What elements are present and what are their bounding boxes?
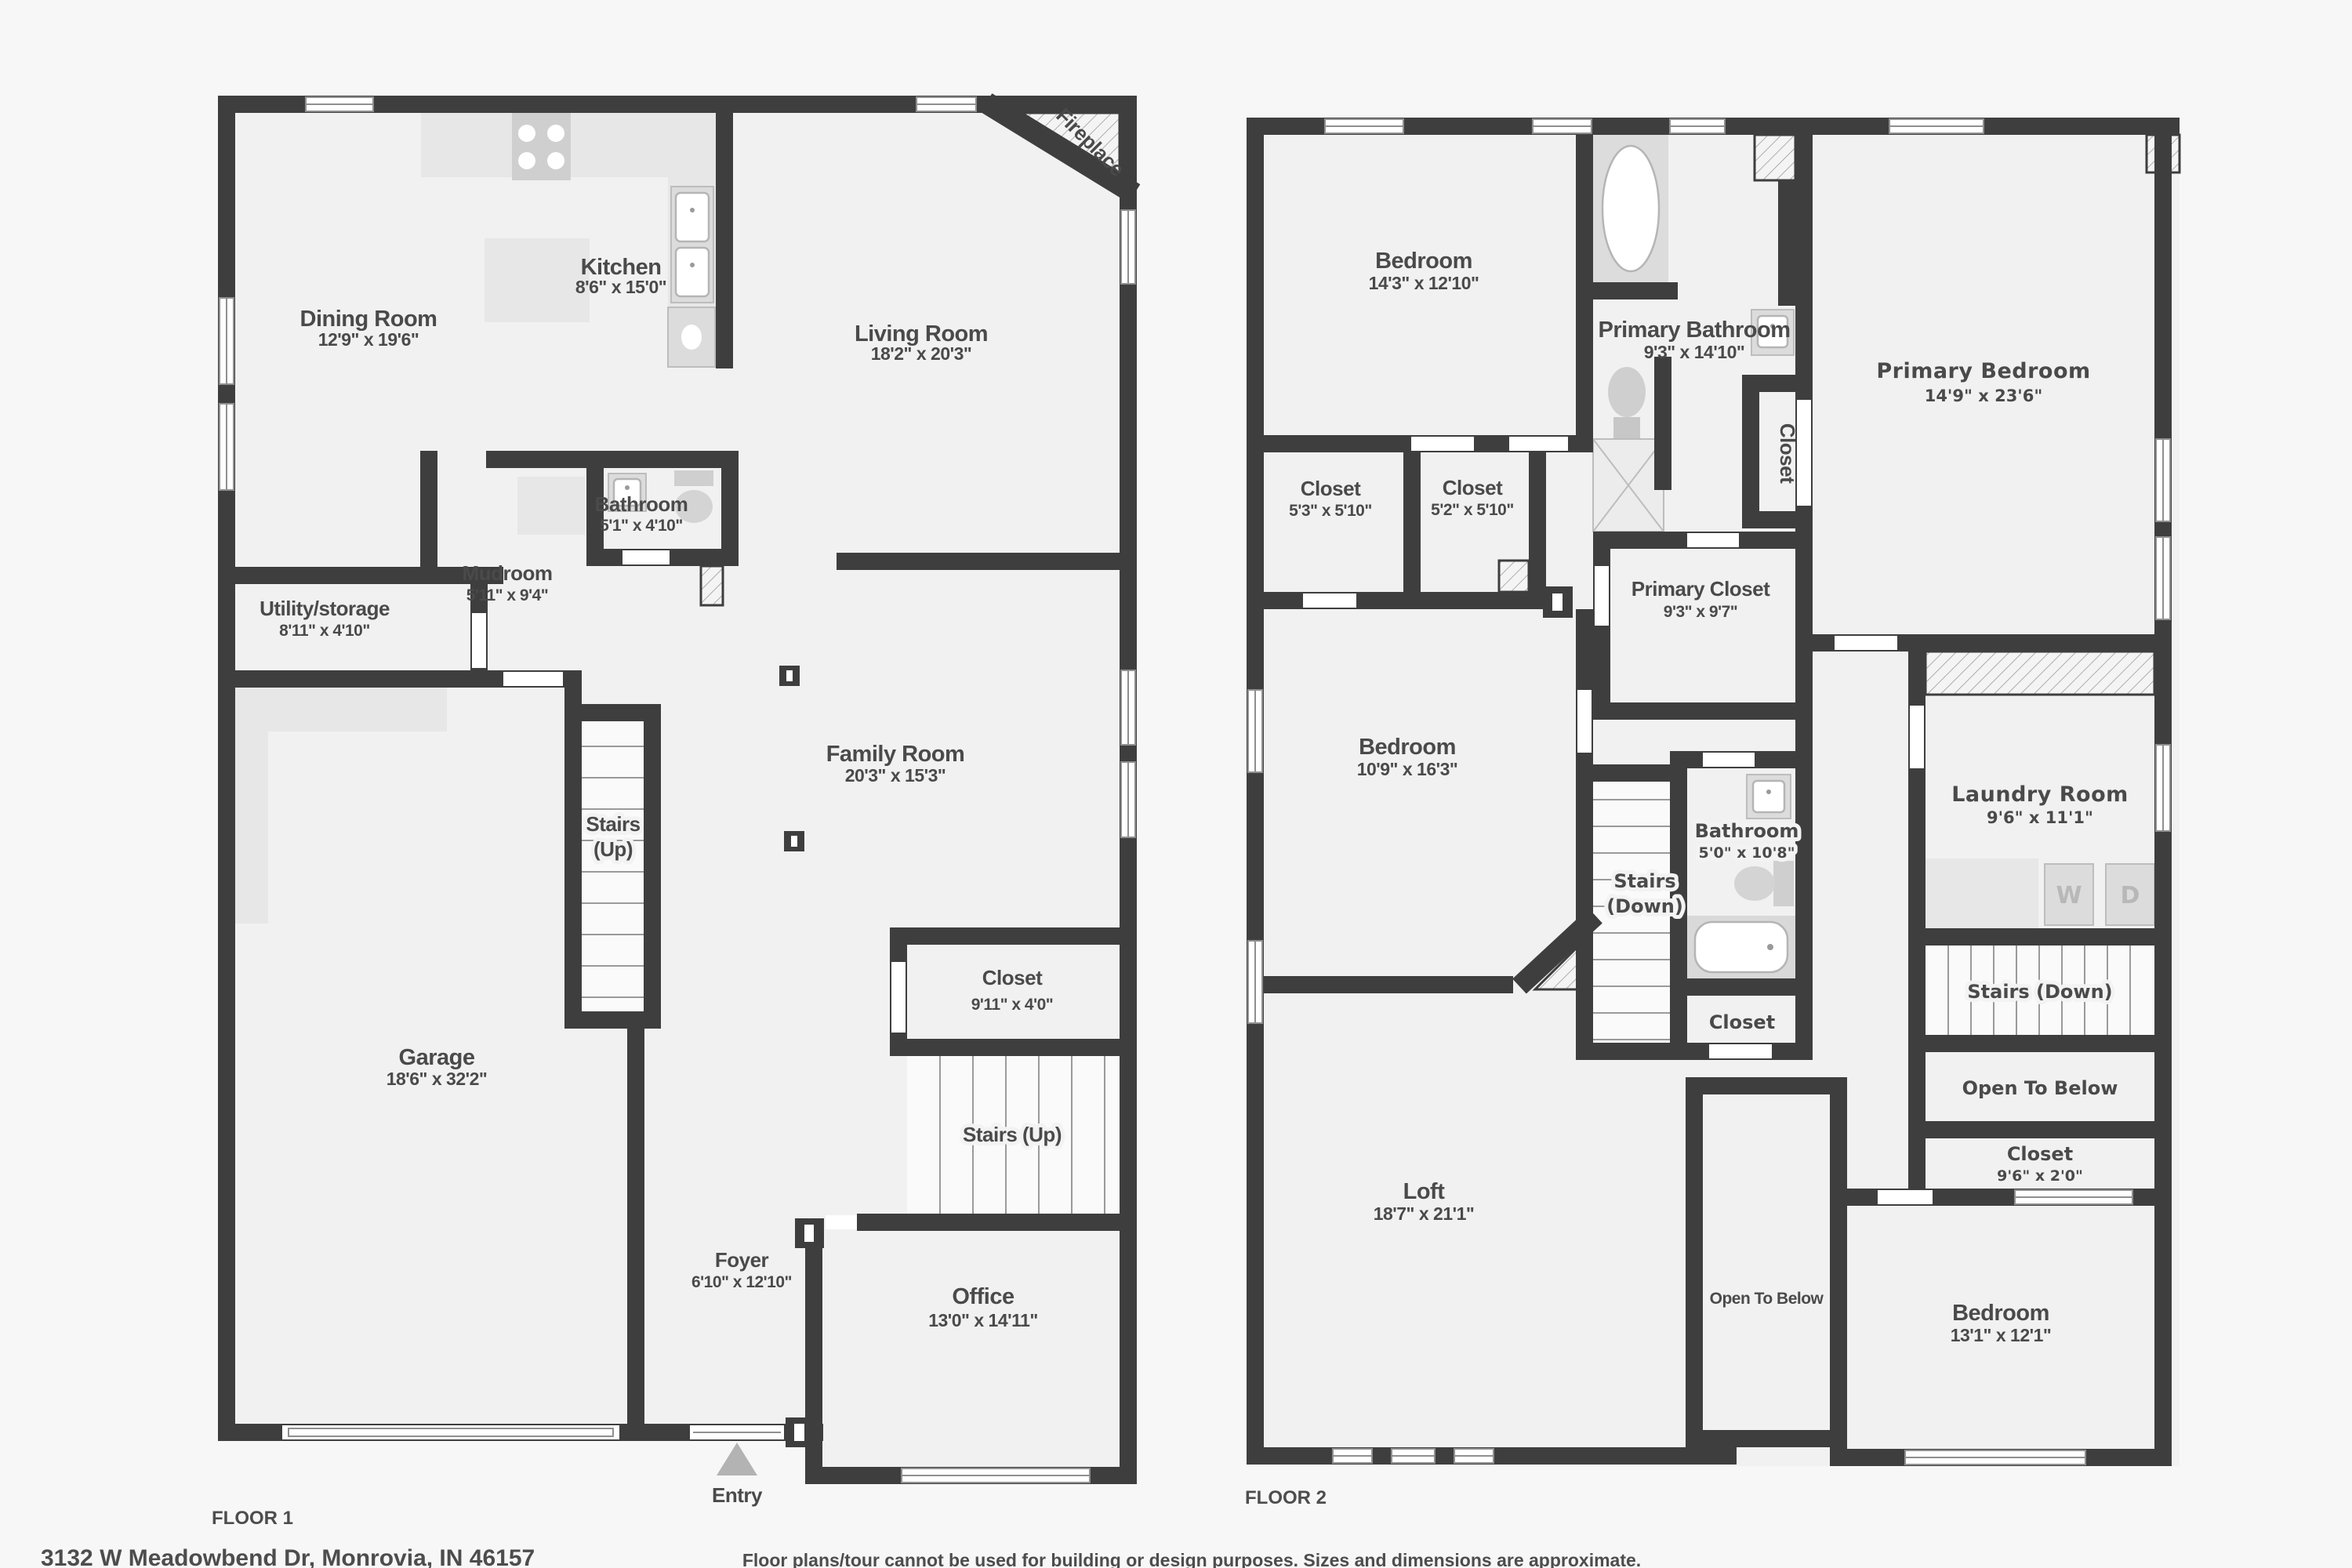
- room-dims-primary-closet: 9'3" x 9'7": [1664, 603, 1737, 621]
- window: [2156, 745, 2170, 831]
- room-label-closet-f1: Closet: [982, 966, 1043, 989]
- closet-hatch: [1499, 561, 1529, 592]
- bathroom2-sink-icon: [1747, 775, 1791, 818]
- room-dims-utility: 8'11" x 4'10": [279, 622, 370, 640]
- window: [1670, 119, 1725, 133]
- room-dims-family: 20'3" x 15'3": [845, 765, 946, 786]
- room-dims-loft: 18'7" x 21'1": [1374, 1203, 1475, 1224]
- kitchen-island: [485, 238, 590, 322]
- room-label-bedroom1: Bedroom: [1375, 249, 1472, 274]
- floor1-caption: FLOOR 1: [212, 1508, 293, 1529]
- door-icon: [786, 1417, 814, 1447]
- room-label-stairs-up-right: Stairs (Up): [963, 1123, 1062, 1146]
- room-label-loft: Loft: [1403, 1179, 1446, 1204]
- room-dims-bedroom3: 13'1" x 12'1": [1951, 1325, 2052, 1345]
- room-dims-foyer: 6'10" x 12'10": [691, 1273, 792, 1291]
- address-text: 3132 W Meadowbend Dr, Monrovia, IN 46157: [41, 1545, 535, 1568]
- post-marker: [779, 666, 800, 686]
- window: [1392, 1449, 1435, 1463]
- bathtub-icon: [1593, 135, 1668, 282]
- room-label-primary-bathroom: Primary Bathroom: [1598, 318, 1790, 343]
- window: [2156, 537, 2170, 619]
- room-dims-kitchen: 8'6" x 15'0": [575, 277, 666, 297]
- dryer-letter: D: [2121, 882, 2140, 909]
- room-dims-closet-f1: 9'11" x 4'0": [971, 996, 1054, 1014]
- disclaimer-text: Floor plans/tour cannot be used for buil…: [742, 1550, 1641, 1568]
- pedestal-sink-icon: [1608, 367, 1646, 439]
- window: [1905, 1450, 2085, 1465]
- window: [1121, 210, 1135, 284]
- room-label-bathroom2: Bathroom: [1695, 820, 1799, 842]
- floorplan-canvas: Dining Room 12'9" x 19'6" Kitchen 8'6" x…: [0, 0, 2352, 1568]
- room-label-closet2: Closet: [1443, 476, 1503, 499]
- washer-letter: W: [2056, 882, 2082, 909]
- kitchen-sink-icon: [671, 187, 713, 303]
- window: [220, 404, 234, 490]
- room-label-dining: Dining Room: [300, 307, 437, 332]
- garage-door: [282, 1425, 619, 1439]
- room-label-closet-vertical: Closet: [1776, 423, 1799, 484]
- window: [1325, 119, 1403, 133]
- room-label-closet1: Closet: [1301, 477, 1361, 500]
- duct-hatch: [701, 566, 723, 605]
- room-dims-dining: 12'9" x 19'6": [318, 329, 419, 350]
- floor1-plan: Dining Room 12'9" x 19'6" Kitchen 8'6" x…: [218, 96, 1137, 1507]
- room-dims-living: 18'2" x 20'3": [871, 343, 972, 364]
- dryer-icon: D: [2106, 864, 2154, 925]
- room-label-bathroom1: Bathroom: [595, 492, 688, 516]
- chimney-hatch: [1755, 135, 1795, 180]
- room-label-closet-small: Closet: [2007, 1143, 2073, 1165]
- floor2-caption: FLOOR 2: [1245, 1487, 1327, 1508]
- window: [1533, 119, 1592, 133]
- entry-arrow-icon: [717, 1443, 757, 1475]
- window: [1454, 1449, 1494, 1463]
- room-label-bedroom2: Bedroom: [1359, 735, 1456, 760]
- room-label-stairs-up-left-2: (Up): [593, 837, 633, 861]
- window: [1121, 670, 1135, 745]
- laundry-counter: [1926, 858, 2038, 928]
- room-label-garage: Garage: [399, 1045, 475, 1070]
- window: [2156, 439, 2170, 521]
- room-dims-closet2: 5'2" x 5'10": [1431, 501, 1514, 519]
- window: [1248, 941, 1262, 1023]
- stove-icon: [512, 113, 571, 180]
- bathtub2-icon: [1687, 916, 1795, 978]
- room-dims-bedroom1: 14'3" x 12'10": [1369, 273, 1479, 293]
- window: [1248, 690, 1262, 772]
- dishwasher-icon: [668, 307, 715, 367]
- room-dims-garage: 18'6" x 32'2": [387, 1069, 488, 1089]
- room-label-office: Office: [952, 1284, 1014, 1309]
- room-dims-bedroom2: 10'9" x 16'3": [1357, 759, 1458, 779]
- room-dims-mudroom: 5'11" x 9'4": [466, 586, 549, 604]
- floor2-plan: W D: [1247, 118, 2180, 1466]
- room-label-bedroom3: Bedroom: [1952, 1301, 2049, 1326]
- room-label-stairs-down-left-2: (Down): [1606, 895, 1683, 917]
- room-label-laundry: Laundry Room: [1951, 782, 2129, 807]
- shower-icon: [1593, 439, 1664, 532]
- room-label-open-below-right: Open To Below: [1962, 1077, 2118, 1099]
- room-label-utility: Utility/storage: [260, 597, 390, 620]
- window: [306, 97, 373, 111]
- room-dims-office: 13'0" x 14'11": [928, 1310, 1038, 1330]
- mudroom-bench: [517, 477, 585, 535]
- room-label-family: Family Room: [826, 742, 965, 767]
- window: [1333, 1449, 1372, 1463]
- room-label-stairs-up-left-1: Stairs: [586, 812, 640, 836]
- room-label-entry: Entry: [712, 1483, 763, 1507]
- window: [220, 298, 234, 384]
- hatch-band: [1926, 652, 2154, 695]
- room-dims-primary-bedroom: 14'9" x 23'6": [1925, 387, 2043, 405]
- stairs-up-left: [582, 721, 644, 1011]
- floor1-office-interior: [805, 1214, 1137, 1484]
- room-label-stairs-down-left-1: Stairs: [1613, 870, 1675, 892]
- room-dims-laundry: 9'6" x 11'1": [1987, 808, 2093, 827]
- room-label-closet-mid: Closet: [1709, 1011, 1775, 1033]
- room-dims-closet-small: 9'6" x 2'0": [1997, 1167, 2083, 1185]
- post-marker: [784, 831, 804, 851]
- room-dims-bathroom2: 5'0" x 10'8": [1698, 844, 1795, 862]
- door-icon: [1543, 586, 1573, 618]
- room-label-stairs-down-right: Stairs (Down): [1967, 981, 2112, 1003]
- room-label-foyer: Foyer: [715, 1248, 769, 1272]
- window: [916, 97, 976, 111]
- door-icon: [795, 1218, 824, 1248]
- room-dims-primary-bathroom: 9'3" x 14'10": [1644, 342, 1745, 362]
- interior-window: [2015, 1190, 2132, 1204]
- room-label-primary-closet: Primary Closet: [1632, 577, 1770, 601]
- room-label-mudroom: Mudroom: [463, 561, 553, 585]
- room-label-primary-bedroom: Primary Bedroom: [1876, 359, 2090, 383]
- window: [1889, 119, 1984, 133]
- washer-icon: W: [2045, 864, 2093, 925]
- window: [1121, 762, 1135, 837]
- room-label-open-below-mid: Open To Below: [1710, 1290, 1824, 1308]
- room-dims-bathroom1: 5'1" x 4'10": [600, 517, 683, 535]
- window: [902, 1468, 1090, 1483]
- room-dims-closet1: 5'3" x 5'10": [1289, 502, 1372, 520]
